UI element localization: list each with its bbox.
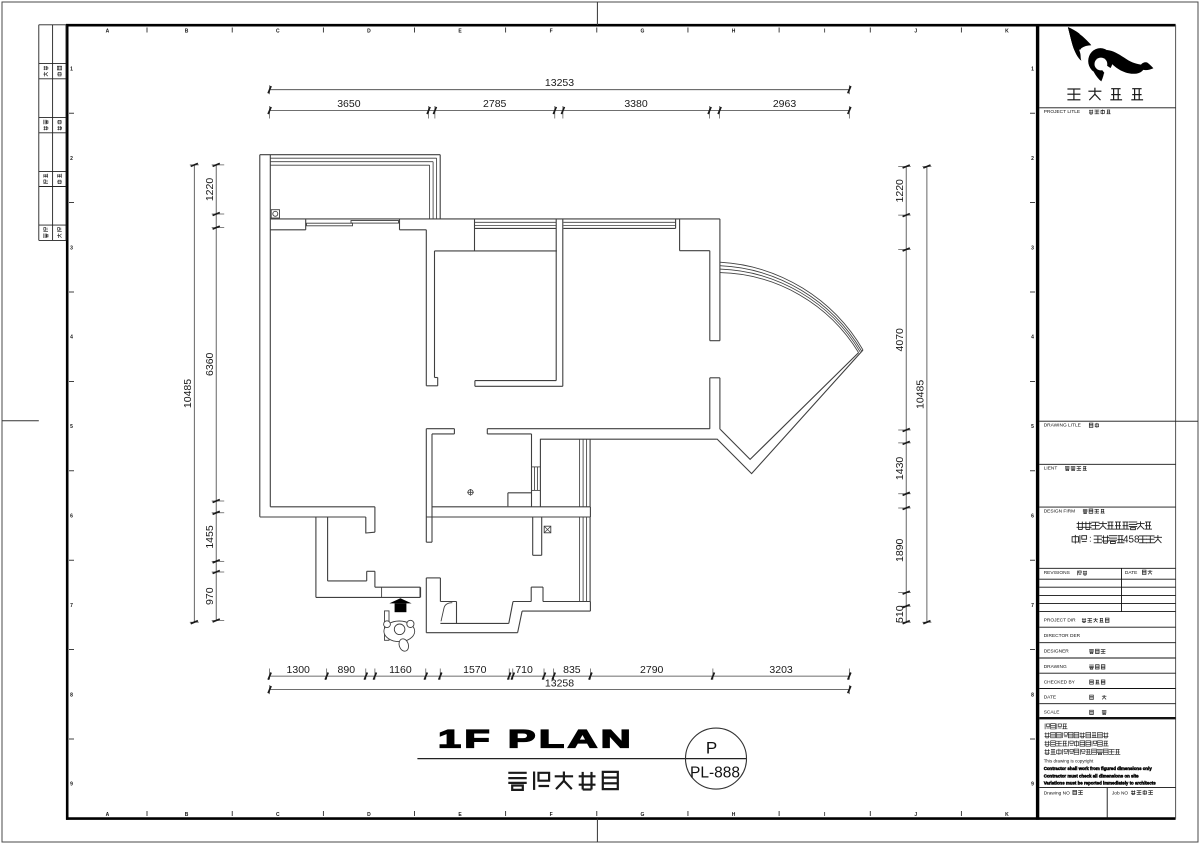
svg-text:710: 710	[515, 664, 533, 676]
svg-text:H: H	[732, 29, 736, 35]
svg-text:9: 9	[1031, 782, 1034, 788]
svg-text:7: 7	[1031, 603, 1034, 609]
svg-text:970: 970	[204, 587, 216, 605]
svg-text:J: J	[914, 29, 917, 35]
svg-text:PROJECT LITLE: PROJECT LITLE	[1044, 109, 1080, 115]
svg-text:E: E	[458, 812, 462, 818]
svg-text:Variations must be reported im: Variations must be reported immediately …	[1044, 781, 1157, 786]
svg-text:8: 8	[70, 692, 73, 698]
svg-text:2963: 2963	[773, 98, 797, 110]
svg-text:7: 7	[70, 603, 73, 609]
svg-text:SCALE: SCALE	[1044, 710, 1060, 716]
svg-text:2: 2	[70, 156, 73, 162]
svg-text:CHECKED BY: CHECKED BY	[1044, 679, 1076, 685]
svg-text:A: A	[106, 812, 110, 818]
svg-text:3650: 3650	[337, 98, 361, 110]
svg-text:DESIGN FIRM: DESIGN FIRM	[1044, 509, 1075, 515]
svg-text:D: D	[367, 812, 371, 818]
svg-text:G: G	[640, 29, 644, 35]
svg-text:10485: 10485	[915, 380, 927, 409]
svg-text:K: K	[1005, 29, 1009, 35]
svg-text:LIENT: LIENT	[1044, 466, 1058, 472]
svg-text:J: J	[914, 812, 917, 818]
svg-text:G: G	[640, 812, 644, 818]
svg-text:3: 3	[70, 245, 73, 251]
svg-text:Contractor shall work from fig: Contractor shall work from figured dimen…	[1044, 766, 1153, 771]
svg-text:5: 5	[70, 424, 73, 430]
svg-text:P: P	[706, 739, 717, 758]
svg-text:A: A	[106, 29, 110, 35]
svg-text:This drawing is copyright: This drawing is copyright	[1044, 759, 1094, 764]
svg-text:K: K	[1005, 812, 1009, 818]
svg-text:1890: 1890	[894, 538, 906, 562]
svg-text:1430: 1430	[894, 457, 906, 481]
svg-text:H: H	[732, 812, 736, 818]
svg-text:E: E	[458, 29, 462, 35]
svg-text:C: C	[276, 29, 280, 35]
svg-text:F: F	[550, 812, 553, 818]
svg-text:F: F	[550, 29, 553, 35]
svg-text:3: 3	[1031, 245, 1034, 251]
svg-text:4070: 4070	[894, 328, 906, 352]
svg-text:C: C	[276, 812, 280, 818]
svg-text:REVISIONS: REVISIONS	[1044, 570, 1070, 576]
svg-text:5: 5	[1031, 424, 1034, 430]
svg-text:PROJECT DIR: PROJECT DIR	[1044, 618, 1076, 624]
svg-text:835: 835	[563, 664, 581, 676]
svg-text:3203: 3203	[769, 664, 793, 676]
svg-text:13258: 13258	[545, 678, 574, 690]
svg-text:2: 2	[1031, 156, 1034, 162]
svg-text:I: I	[824, 29, 826, 35]
svg-text:D: D	[367, 29, 371, 35]
svg-text:1300: 1300	[287, 664, 311, 676]
svg-text:1F PLAN: 1F PLAN	[438, 726, 634, 754]
svg-text:6: 6	[70, 514, 73, 520]
svg-text:13253: 13253	[545, 77, 574, 89]
svg-text:1160: 1160	[389, 664, 412, 676]
svg-text:8: 8	[1031, 692, 1034, 698]
svg-text:510: 510	[894, 605, 906, 623]
svg-text:458: 458	[1123, 534, 1140, 545]
svg-text:4: 4	[70, 335, 73, 341]
svg-text:B: B	[185, 812, 189, 818]
svg-text:6360: 6360	[204, 352, 216, 376]
svg-text:DRAWING LITLE: DRAWING LITLE	[1044, 423, 1081, 429]
svg-text:DATE: DATE	[1044, 695, 1056, 701]
svg-text:B: B	[185, 29, 189, 35]
svg-text:I: I	[824, 812, 826, 818]
svg-text:2785: 2785	[483, 98, 507, 110]
svg-text:Job NO: Job NO	[1112, 791, 1129, 797]
svg-text:DRAWING: DRAWING	[1044, 664, 1067, 670]
svg-text:1220: 1220	[204, 178, 216, 202]
svg-text:1570: 1570	[463, 664, 487, 676]
svg-text:1220: 1220	[894, 179, 906, 203]
svg-text:PL-888: PL-888	[690, 765, 740, 782]
svg-text:Drawing NO: Drawing NO	[1044, 791, 1070, 797]
svg-text:9: 9	[70, 782, 73, 788]
svg-text:3380: 3380	[624, 98, 648, 110]
svg-text:2790: 2790	[640, 664, 664, 676]
svg-text:DIRECTOR DER: DIRECTOR DER	[1044, 633, 1081, 639]
svg-text:4: 4	[1031, 335, 1034, 341]
svg-text:DATE: DATE	[1125, 570, 1137, 576]
svg-text:10485: 10485	[182, 379, 194, 408]
svg-text:Contractor must check all dime: Contractor must check all dimensions on …	[1044, 773, 1139, 778]
svg-text:DESIGNER: DESIGNER	[1044, 649, 1070, 655]
svg-text:1: 1	[70, 67, 73, 73]
svg-text:890: 890	[338, 664, 356, 676]
svg-text:1455: 1455	[204, 525, 216, 549]
svg-text:1: 1	[1031, 67, 1034, 73]
svg-text:6: 6	[1031, 514, 1034, 520]
